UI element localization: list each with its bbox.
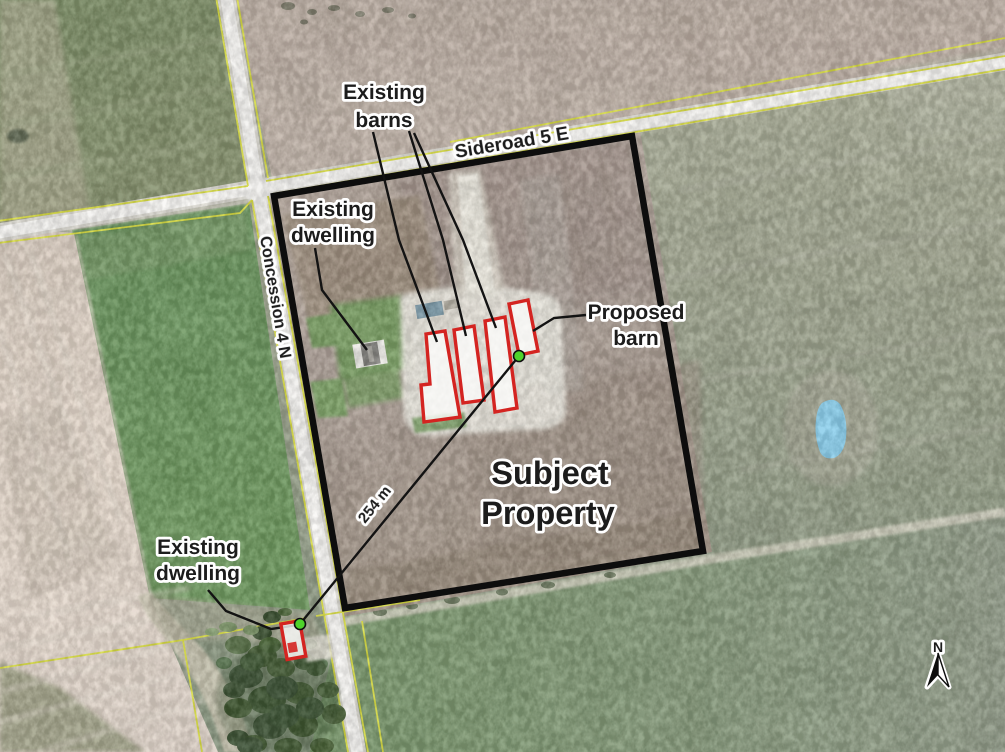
svg-text:Proposed: Proposed [588, 301, 685, 324]
svg-text:Property: Property [481, 495, 615, 531]
svg-text:Subject: Subject [491, 455, 609, 491]
svg-text:N: N [933, 639, 943, 655]
svg-text:Existing: Existing [343, 81, 425, 104]
svg-text:Existing: Existing [157, 536, 239, 559]
svg-text:barn: barn [613, 327, 659, 350]
svg-text:Existing: Existing [292, 198, 374, 221]
svg-text:dwelling: dwelling [291, 224, 375, 247]
svg-text:barns: barns [355, 109, 412, 132]
svg-text:dwelling: dwelling [156, 562, 240, 585]
